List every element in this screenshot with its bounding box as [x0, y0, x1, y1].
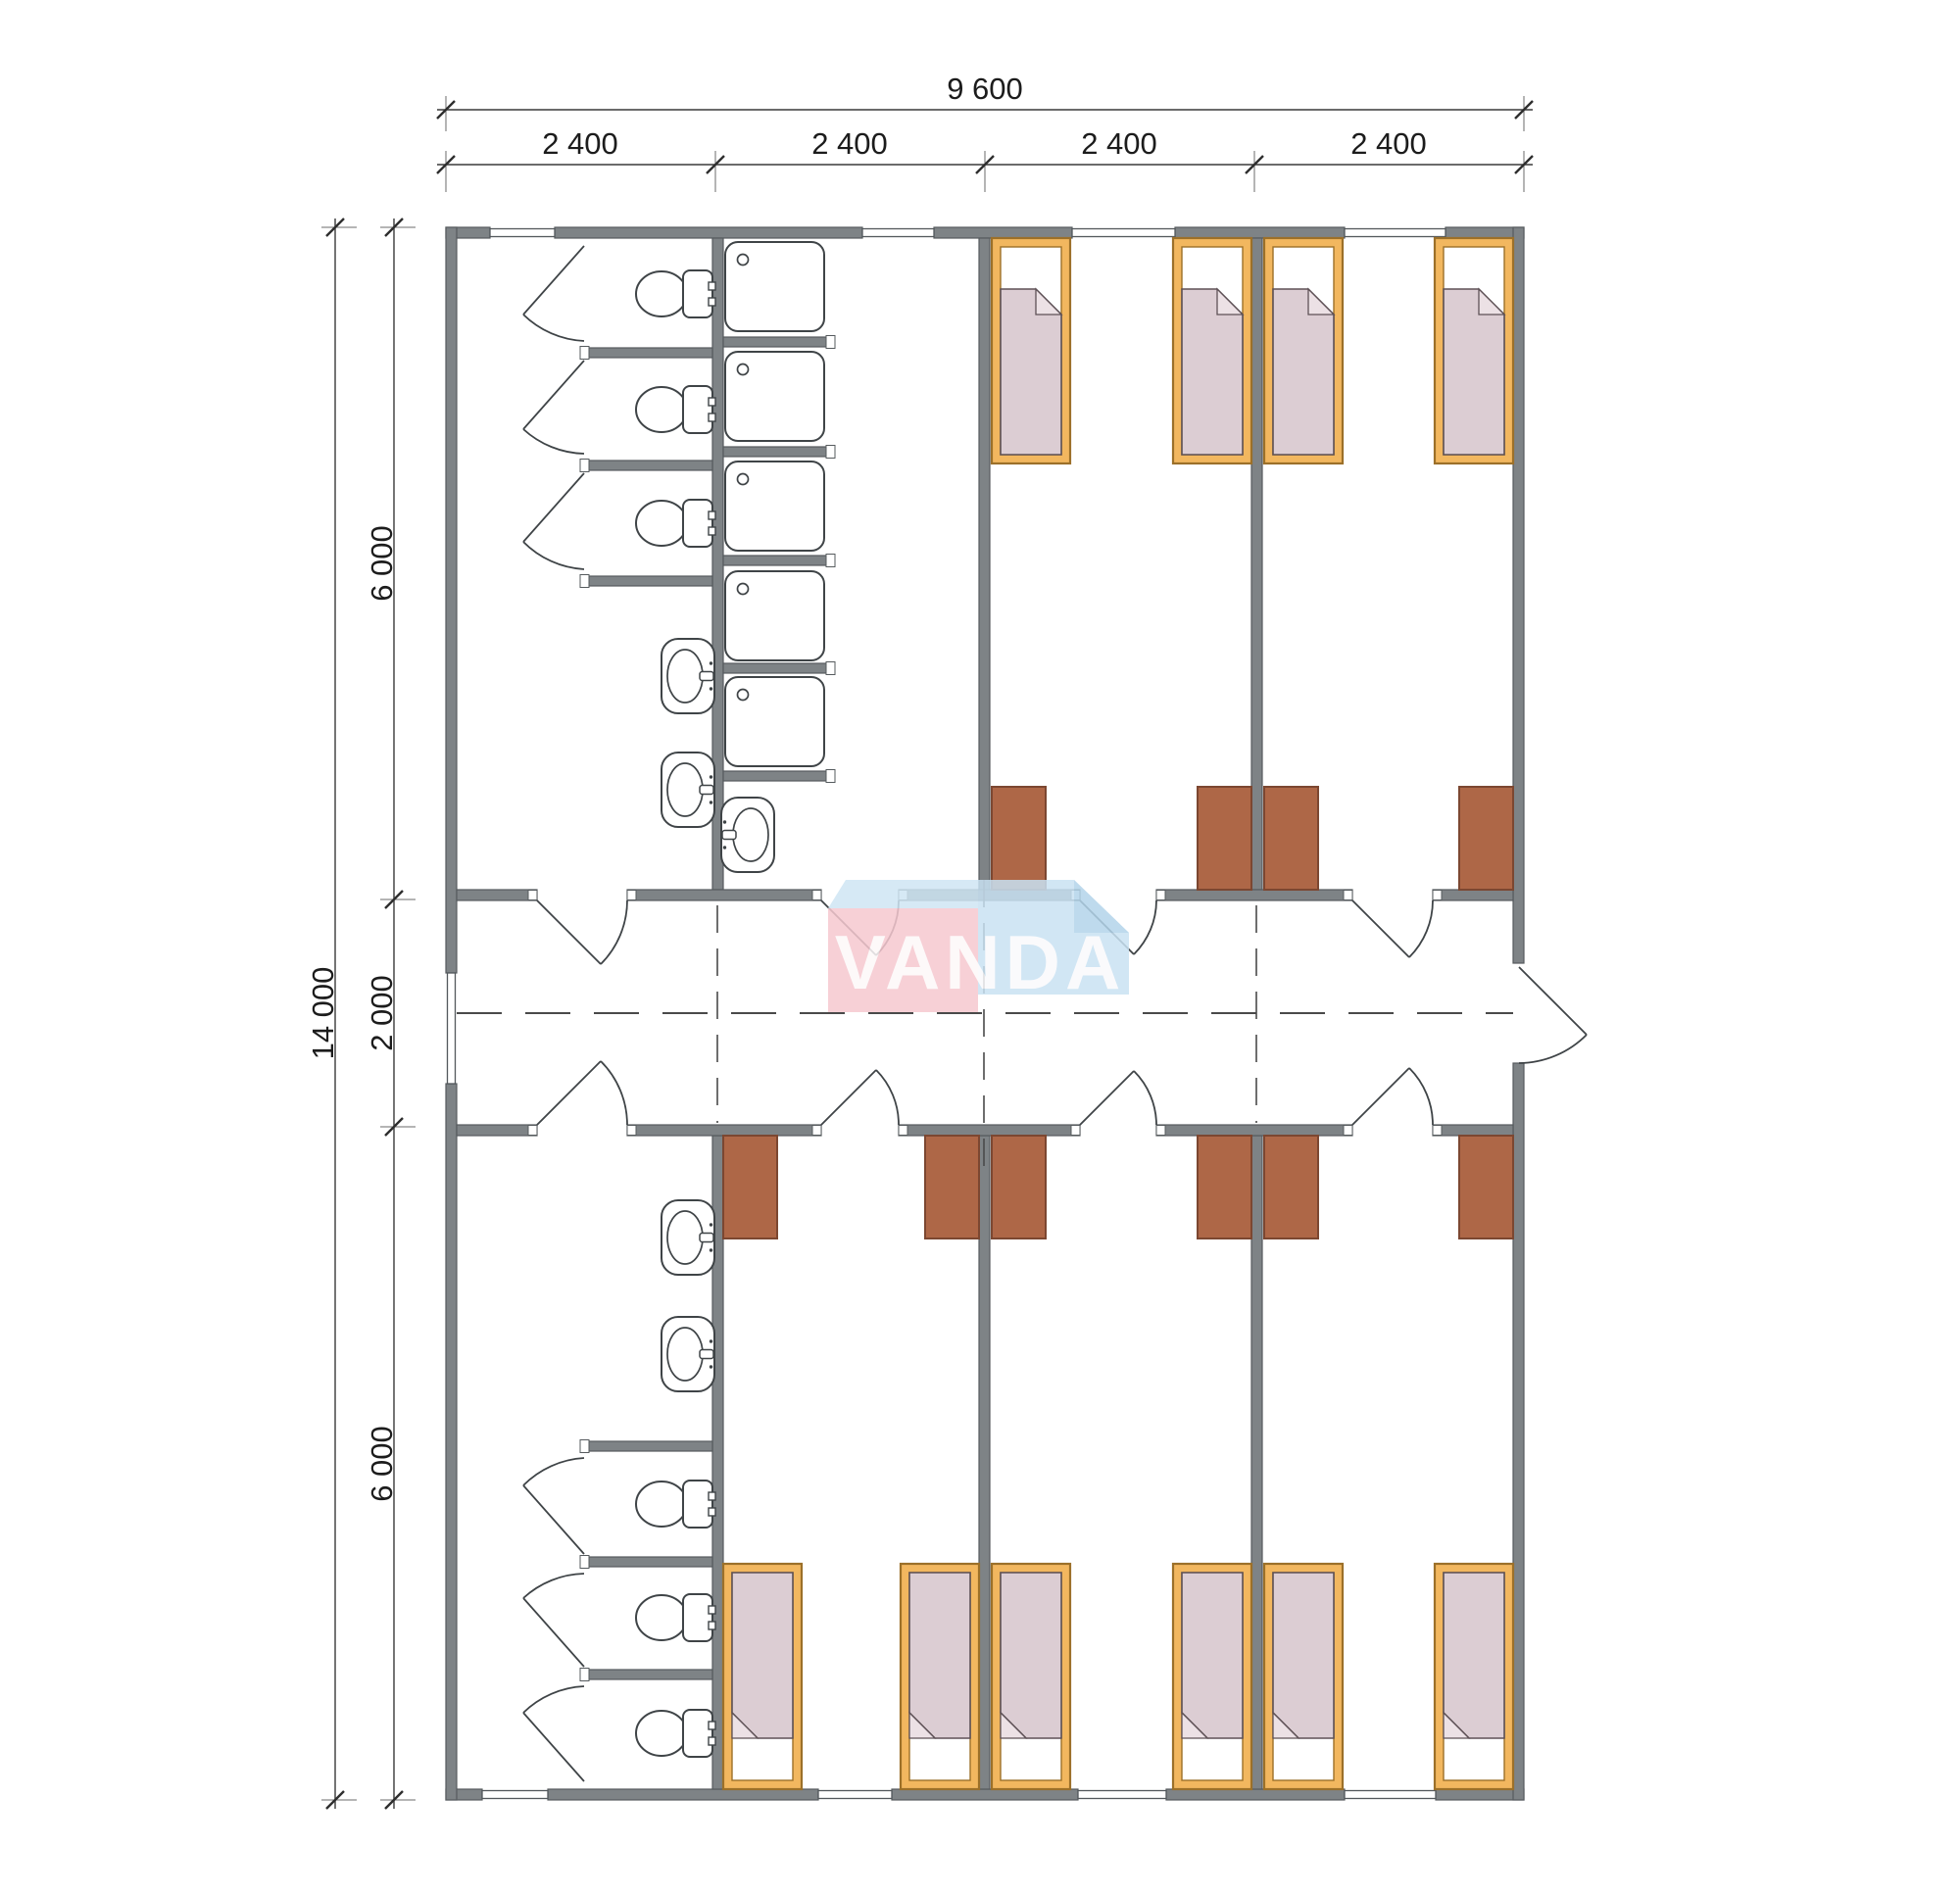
floor-plan-canvas: 9 600 2 400 2 400 2 400 2 400 14 000 [0, 0, 1960, 1894]
stall-partition [580, 1669, 712, 1681]
shower-tray-icon [725, 677, 824, 766]
window-icon [818, 1791, 892, 1799]
shower-partition [723, 446, 835, 459]
shower-tray-icon [725, 242, 824, 331]
dim-top-segment-1-label: 2 400 [542, 126, 618, 161]
stall-door [523, 1485, 584, 1554]
sink-icon [661, 1317, 714, 1391]
bed-icon [1435, 1564, 1513, 1789]
shower-tray-icon [725, 461, 824, 551]
window-icon [1072, 229, 1175, 237]
stall-partition [580, 575, 712, 588]
desk-icon [992, 1136, 1046, 1238]
room-door [537, 1061, 1433, 1125]
dim-left-segment-1-label: 6 000 [365, 525, 399, 602]
shower-partition [723, 662, 835, 675]
desk-icon [925, 1136, 979, 1238]
stall-door [523, 246, 584, 315]
toilet-icon [636, 1594, 715, 1641]
stall-partition [580, 347, 712, 360]
bed-icon [992, 1564, 1070, 1789]
toilet-icon [636, 500, 715, 547]
toilet-room-top [523, 246, 715, 827]
stall-door [523, 1598, 584, 1667]
desk-icon [1198, 787, 1251, 890]
stall-partition [580, 1556, 712, 1569]
bed-icon [1173, 238, 1251, 463]
bed-icon [901, 1564, 979, 1789]
dim-top-segment-4-label: 2 400 [1350, 126, 1427, 161]
watermark-blue-fold [828, 880, 978, 908]
watermark-text: VANDA [835, 919, 1126, 1005]
sink-icon [661, 1200, 714, 1275]
desk-icon [992, 787, 1046, 890]
toilet-room-bottom [523, 1200, 715, 1781]
sink-icon [661, 753, 714, 827]
stall-door [523, 1713, 584, 1781]
shower-partition [723, 555, 835, 567]
dim-left-total-label: 14 000 [306, 967, 340, 1060]
sink-icon [661, 639, 714, 713]
window-icon [482, 1791, 548, 1799]
desk-icon [1264, 787, 1318, 890]
bed-icon [1264, 1564, 1343, 1789]
bed-icon [992, 238, 1070, 463]
floor-plan-page: 9 600 2 400 2 400 2 400 2 400 14 000 [0, 0, 1960, 1894]
dim-top-segment-2-label: 2 400 [811, 126, 888, 161]
sink-icon [721, 798, 774, 872]
stall-door [523, 473, 584, 542]
toilet-icon [636, 386, 715, 433]
bed-icon [1264, 238, 1343, 463]
shower-tray-icon [725, 571, 824, 660]
stall-door [523, 361, 584, 429]
desk-icon [723, 1136, 777, 1238]
window-icon [1345, 229, 1445, 237]
toilet-icon [636, 1710, 715, 1757]
dim-left-segment-3-label: 6 000 [365, 1426, 399, 1502]
dim-top-segment-3-label: 2 400 [1081, 126, 1157, 161]
desk-icon [1198, 1136, 1251, 1238]
shower-partition [723, 336, 835, 349]
window-icon [1345, 1791, 1436, 1799]
dim-left-segment-2-label: 2 000 [365, 975, 399, 1051]
bed-icon [1173, 1564, 1251, 1789]
stall-partition [580, 1440, 712, 1453]
desk-icon [1459, 787, 1513, 890]
window-icon [1078, 1791, 1166, 1799]
bed-icon [1435, 238, 1513, 463]
shower-tray-icon [725, 352, 824, 441]
stall-partition [580, 460, 712, 472]
shower-room-top [721, 242, 835, 872]
window-icon [862, 229, 934, 237]
bed-icon [723, 1564, 802, 1789]
desk-icon [1459, 1136, 1513, 1238]
toilet-icon [636, 270, 715, 317]
watermark: VANDA [828, 880, 1129, 1012]
desk-icon [1264, 1136, 1318, 1238]
corridor-end-window-icon [448, 973, 456, 1084]
shower-partition [723, 770, 835, 783]
exterior-door [1519, 967, 1587, 1063]
toilet-icon [636, 1481, 715, 1528]
dim-top-total-label: 9 600 [947, 72, 1023, 106]
window-icon [490, 229, 555, 237]
